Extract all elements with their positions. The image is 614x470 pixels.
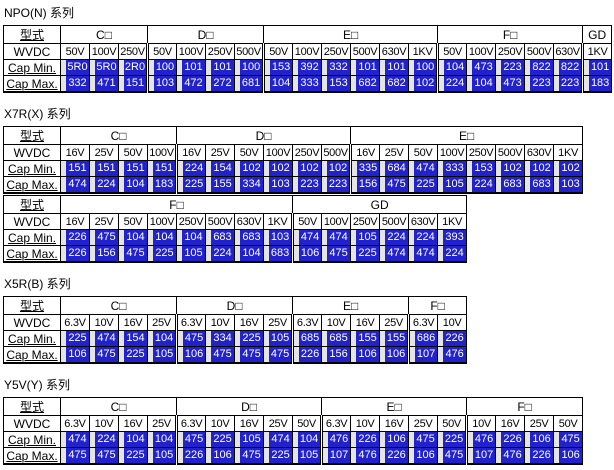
cap-value-link[interactable]: 102	[298, 161, 321, 176]
cap-value-link[interactable]: 226	[385, 448, 408, 463]
voltage-header: 250V	[322, 44, 351, 60]
cap-min-cell: 155	[351, 331, 380, 347]
cap-value-link[interactable]: 474	[66, 432, 89, 447]
cap-value-link[interactable]: 151	[95, 161, 118, 176]
group-header: D□	[177, 297, 293, 315]
cap-value-link[interactable]: 223	[559, 76, 581, 91]
cap-value-link[interactable]: 225	[211, 432, 234, 447]
cap-value-link[interactable]: 5R0	[95, 60, 118, 75]
cap-value-link[interactable]: 475	[240, 347, 263, 362]
cap-max-cell: 153	[322, 76, 351, 93]
cap-value-link[interactable]: 475	[327, 246, 350, 261]
cap-value-link[interactable]: 684	[385, 161, 408, 176]
row-label-cap-max[interactable]: Cap Max.	[4, 177, 61, 194]
cap-value-link[interactable]: 156	[95, 246, 118, 261]
cap-value-link[interactable]: 226	[66, 246, 89, 261]
cap-value-link[interactable]: 2R0	[124, 60, 146, 75]
cap-value-link[interactable]: 102	[530, 161, 553, 176]
voltage-header: 6.3V	[177, 416, 206, 432]
cap-value-link[interactable]: 393	[443, 230, 466, 245]
cap-value-link[interactable]: 106	[299, 246, 321, 261]
group-header: GD	[583, 26, 612, 44]
cap-value-link[interactable]: 183	[589, 76, 611, 91]
cap-max-cell: 183	[148, 177, 177, 194]
cap-value-link[interactable]: 154	[124, 331, 147, 346]
cap-max-cell: 104	[264, 76, 293, 93]
cap-max-cell: 474	[61, 177, 90, 194]
table-row: Cap Min.22647510410410468368310347447410…	[4, 230, 467, 246]
cap-value-link[interactable]: 685	[327, 331, 350, 346]
cap-value-link[interactable]: 475	[95, 347, 118, 362]
row-label-wvdc: WVDC	[4, 315, 61, 331]
cap-value-link[interactable]: 224	[385, 230, 408, 245]
cap-value-link[interactable]: 226	[356, 432, 379, 447]
cap-value-link[interactable]: 105	[269, 331, 291, 346]
cap-max-cell: 105	[177, 246, 206, 263]
cap-min-cell: 475	[177, 331, 206, 347]
cap-value-link[interactable]: 223	[327, 177, 349, 192]
row-label-cap-min[interactable]: Cap Min.	[4, 161, 61, 177]
cap-value-link[interactable]: 103	[559, 177, 582, 192]
cap-value-link[interactable]: 103	[269, 177, 292, 192]
cap-value-link[interactable]: 155	[385, 331, 407, 346]
cap-value-link[interactable]: 154	[211, 161, 234, 176]
voltage-header: 250V	[351, 214, 380, 230]
cap-value-link[interactable]: 476	[443, 347, 466, 362]
cap-value-link[interactable]: 475	[211, 347, 234, 362]
cap-min-cell: 103	[264, 230, 293, 246]
voltage-header: 1KV	[438, 214, 467, 230]
cap-value-link[interactable]: 102	[559, 161, 582, 176]
voltage-header: 25V	[409, 416, 438, 432]
cap-value-link[interactable]: 686	[415, 331, 437, 346]
cap-max-cell: 103	[148, 76, 177, 93]
cap-value-link[interactable]: 106	[559, 448, 582, 463]
table-row: Cap Min.5R05R02R010010110110015339233210…	[4, 60, 612, 76]
cap-value-link[interactable]: 475	[414, 432, 437, 447]
voltage-header: 100V	[148, 145, 177, 161]
cap-value-link[interactable]: 226	[530, 448, 553, 463]
cap-value-link[interactable]: 107	[328, 448, 350, 463]
cap-value-link[interactable]: 822	[559, 60, 581, 75]
cap-value-link[interactable]: 106	[183, 347, 205, 362]
cap-value-link[interactable]: 225	[124, 347, 147, 362]
cap-value-link[interactable]: 475	[269, 347, 291, 362]
cap-min-cell: 105	[351, 230, 380, 246]
cap-min-cell: 102	[554, 161, 583, 177]
voltage-header: 250V	[206, 44, 235, 60]
cap-value-link[interactable]: 335	[357, 161, 379, 176]
cap-value-link[interactable]: 476	[328, 432, 350, 447]
cap-value-link[interactable]: 100	[240, 60, 262, 75]
cap-value-link[interactable]: 106	[385, 347, 407, 362]
cap-min-cell: 224	[177, 161, 206, 177]
cap-min-cell: 153	[467, 161, 496, 177]
cap-value-link[interactable]: 156	[357, 177, 379, 192]
row-label-type[interactable]: 型式	[4, 196, 61, 214]
cap-value-link[interactable]: 183	[153, 177, 175, 192]
cap-value-link[interactable]: 223	[530, 76, 553, 91]
cap-value-link[interactable]: 475	[240, 448, 263, 463]
cap-min-cell: 104	[177, 230, 206, 246]
cap-max-cell: 107	[409, 347, 438, 364]
cap-value-link[interactable]: 474	[385, 246, 408, 261]
row-label-cap-min[interactable]: Cap Min.	[4, 230, 61, 246]
row-label-cap-min[interactable]: Cap Min.	[4, 432, 61, 448]
cap-value-link[interactable]: 105	[153, 347, 175, 362]
cap-max-cell: 475	[90, 347, 119, 364]
row-label-type[interactable]: 型式	[4, 297, 61, 315]
cap-value-link[interactable]: 101	[356, 60, 379, 75]
cap-value-link[interactable]: 474	[414, 161, 437, 176]
cap-value-link[interactable]: 105	[443, 177, 466, 192]
table-row: WVDC6.3V10V16V25V6.3V10V16V25V50V6.3V10V…	[4, 416, 583, 432]
cap-max-cell: 475	[235, 448, 264, 465]
row-label-cap-max[interactable]: Cap Max.	[4, 246, 61, 263]
cap-value-link[interactable]: 102	[501, 161, 524, 176]
row-label-wvdc: WVDC	[4, 416, 61, 432]
cap-min-cell: 226	[61, 230, 90, 246]
cap-value-link[interactable]: 223	[298, 177, 321, 192]
cap-value-link[interactable]: 155	[211, 177, 234, 192]
cap-value-link[interactable]: 153	[270, 60, 292, 75]
row-label-cap-min[interactable]: Cap Min.	[4, 60, 61, 76]
voltage-header: 10V	[438, 315, 467, 331]
cap-max-cell: 156	[90, 246, 119, 263]
cap-min-cell: 686	[409, 331, 438, 347]
cap-value-link[interactable]: 151	[153, 161, 175, 176]
cap-value-link[interactable]: 474	[299, 230, 321, 245]
voltage-header: 100V	[90, 44, 119, 60]
voltage-header: 500V	[235, 44, 264, 60]
cap-value-link[interactable]: 104	[270, 76, 292, 91]
group-header: C□	[61, 398, 177, 416]
cap-value-link[interactable]: 225	[124, 448, 147, 463]
cap-value-link[interactable]: 333	[443, 161, 466, 176]
voltage-header: 10V	[351, 416, 380, 432]
cap-value-link[interactable]: 683	[211, 230, 234, 245]
cap-value-link[interactable]: 224	[211, 246, 234, 261]
cap-value-link[interactable]: 223	[501, 60, 524, 75]
cap-value-link[interactable]: 105	[182, 246, 205, 261]
cap-min-cell: 101	[206, 60, 235, 76]
cap-value-link[interactable]: 105	[240, 432, 263, 447]
cap-value-link[interactable]: 474	[95, 331, 118, 346]
cap-value-link[interactable]: 104	[153, 432, 175, 447]
cap-max-cell: 106	[177, 347, 206, 364]
cap-value-link[interactable]: 107	[473, 448, 495, 463]
voltage-header: 100V	[467, 44, 496, 60]
row-label-cap-max[interactable]: Cap Max.	[4, 76, 61, 93]
cap-value-link[interactable]: 101	[385, 60, 408, 75]
cap-value-link[interactable]: 226	[299, 347, 321, 362]
cap-value-link[interactable]: 104	[124, 230, 147, 245]
cap-value-link[interactable]: 224	[443, 246, 466, 261]
cap-value-link[interactable]: 104	[182, 230, 205, 245]
cap-value-link[interactable]: 226	[183, 448, 205, 463]
voltage-header: 16V	[235, 315, 264, 331]
cap-value-link[interactable]: 151	[124, 76, 146, 91]
cap-value-link[interactable]: 156	[327, 347, 350, 362]
cap-value-link[interactable]: 822	[530, 60, 553, 75]
voltage-header: 250V	[293, 145, 322, 161]
table-row: Cap Min.47422410410447522510547410447622…	[4, 432, 583, 448]
cap-value-link[interactable]: 475	[559, 432, 582, 447]
voltage-header: 16V	[380, 416, 409, 432]
cap-max-cell: 226	[525, 448, 554, 465]
cap-min-cell: 104	[148, 331, 177, 347]
row-label-wvdc: WVDC	[4, 44, 61, 60]
cap-min-cell: 5R0	[61, 60, 90, 76]
cap-min-cell: 104	[119, 230, 148, 246]
table-row: Cap Min.22547415410447533422510568568515…	[4, 331, 467, 347]
cap-min-cell: 224	[380, 230, 409, 246]
cap-value-link[interactable]: 475	[66, 448, 89, 463]
cap-value-link[interactable]: 105	[356, 230, 379, 245]
cap-value-link[interactable]: 476	[356, 448, 379, 463]
voltage-header: 250V	[496, 44, 525, 60]
cap-value-link[interactable]: 100	[154, 60, 176, 75]
voltage-header: 6.3V	[293, 315, 322, 331]
cap-value-link[interactable]: 106	[414, 448, 437, 463]
voltage-header: 10V	[90, 315, 119, 331]
cap-max-cell: 106	[380, 347, 409, 364]
cap-value-link[interactable]: 225	[240, 331, 263, 346]
cap-value-link[interactable]: 474	[66, 177, 89, 192]
cap-max-cell: 682	[380, 76, 409, 93]
group-header: C□	[61, 127, 177, 145]
voltage-header: 16V	[61, 214, 90, 230]
cap-value-link[interactable]: 104	[124, 177, 147, 192]
cap-min-cell: 223	[496, 60, 525, 76]
voltage-header: 500V	[380, 214, 409, 230]
cap-value-link[interactable]: 106	[66, 347, 89, 362]
cap-min-cell: 475	[90, 230, 119, 246]
cap-value-link[interactable]: 475	[124, 246, 147, 261]
table-row: WVDC16V25V50V100V16V25V50V100V250V500V16…	[4, 145, 583, 161]
cap-value-link[interactable]: 153	[327, 76, 350, 91]
row-label-cap-min[interactable]: Cap Min.	[4, 331, 61, 347]
voltage-header: 16V	[119, 315, 148, 331]
cap-value-link[interactable]: 226	[501, 432, 524, 447]
cap-max-cell: 104	[235, 246, 264, 263]
cap-value-link[interactable]: 333	[298, 76, 321, 91]
cap-value-link[interactable]: 471	[95, 76, 118, 91]
cap-min-cell: 155	[380, 331, 409, 347]
cap-value-link[interactable]: 103	[269, 230, 291, 245]
cap-value-link[interactable]: 225	[66, 331, 89, 346]
cap-value-link[interactable]: 681	[240, 76, 262, 91]
cap-value-link[interactable]: 475	[183, 331, 205, 346]
cap-value-link[interactable]: 332	[327, 60, 350, 75]
cap-min-cell: 154	[119, 331, 148, 347]
cap-min-cell: 392	[293, 60, 322, 76]
cap-min-cell: 101	[583, 60, 612, 76]
cap-value-link[interactable]: 224	[183, 161, 205, 176]
cap-value-link[interactable]: 104	[444, 60, 466, 75]
cap-value-link[interactable]: 685	[299, 331, 321, 346]
group-header: F□	[438, 26, 583, 44]
cap-value-link[interactable]: 106	[385, 432, 408, 447]
cap-min-cell: 102	[496, 161, 525, 177]
cap-value-link[interactable]: 102	[414, 76, 436, 91]
cap-value-link[interactable]: 476	[501, 448, 524, 463]
cap-value-link[interactable]: 475	[95, 448, 118, 463]
cap-value-link[interactable]: 475	[443, 448, 465, 463]
cap-value-link[interactable]: 106	[211, 448, 234, 463]
cap-value-link[interactable]: 683	[530, 177, 553, 192]
cap-value-link[interactable]: 101	[211, 60, 234, 75]
cap-min-cell: 226	[438, 331, 467, 347]
cap-max-cell: 681	[235, 76, 264, 93]
cap-value-link[interactable]: 102	[269, 161, 292, 176]
cap-max-cell: 225	[264, 448, 293, 465]
cap-value-link[interactable]: 472	[182, 76, 205, 91]
cap-value-link[interactable]: 225	[269, 448, 292, 463]
cap-value-link[interactable]: 5R0	[66, 60, 89, 75]
cap-value-link[interactable]: 105	[153, 448, 175, 463]
cap-value-link[interactable]: 153	[472, 161, 495, 176]
cap-value-link[interactable]: 475	[95, 230, 118, 245]
cap-value-link[interactable]: 151	[124, 161, 147, 176]
cap-value-link[interactable]: 475	[385, 177, 408, 192]
cap-value-link[interactable]: 224	[95, 177, 118, 192]
cap-value-link[interactable]: 106	[356, 347, 379, 362]
cap-value-link[interactable]: 102	[240, 161, 263, 176]
cap-value-link[interactable]: 683	[269, 246, 291, 261]
cap-value-link[interactable]: 100	[414, 60, 436, 75]
cap-value-link[interactable]: 225	[443, 432, 465, 447]
voltage-header: 50V	[119, 214, 148, 230]
cap-max-cell: 223	[322, 177, 351, 194]
cap-max-cell: 476	[351, 448, 380, 465]
cap-max-cell: 223	[554, 76, 583, 93]
cap-max-cell: 475	[90, 448, 119, 465]
cap-max-cell: 105	[438, 177, 467, 194]
cap-max-cell: 225	[351, 246, 380, 263]
cap-value-link[interactable]: 151	[66, 161, 89, 176]
cap-value-link[interactable]: 225	[414, 177, 437, 192]
voltage-header: 6.3V	[61, 315, 90, 331]
cap-value-link[interactable]: 224	[472, 177, 495, 192]
cap-min-cell: 2R0	[119, 60, 148, 76]
cap-value-link[interactable]: 392	[298, 60, 321, 75]
cap-value-link[interactable]: 224	[414, 230, 437, 245]
cap-min-cell: 101	[380, 60, 409, 76]
cap-value-link[interactable]: 474	[414, 246, 437, 261]
cap-max-cell: 106	[409, 448, 438, 465]
cap-min-cell: 335	[351, 161, 380, 177]
cap-min-cell: 104	[438, 60, 467, 76]
group-header: F□	[409, 297, 467, 315]
voltage-header: 25V	[525, 416, 554, 432]
voltage-header: 100V	[177, 44, 206, 60]
cap-value-link[interactable]: 334	[211, 331, 234, 346]
cap-max-cell: 224	[438, 76, 467, 93]
row-label-cap-max[interactable]: Cap Max.	[4, 347, 61, 364]
cap-value-link[interactable]: 473	[501, 76, 524, 91]
cap-max-cell: 156	[322, 347, 351, 364]
cap-value-link[interactable]: 224	[95, 432, 118, 447]
cap-value-link[interactable]: 225	[356, 246, 379, 261]
cap-max-cell: 106	[351, 347, 380, 364]
cap-max-cell: 224	[206, 246, 235, 263]
cap-max-cell: 683	[525, 177, 554, 194]
cap-value-link[interactable]: 102	[327, 161, 349, 176]
cap-min-cell: 476	[322, 432, 351, 448]
cap-value-link[interactable]: 332	[66, 76, 89, 91]
section-title: X7R(X) 系列	[4, 105, 614, 122]
cap-max-cell: 151	[119, 76, 148, 93]
cap-value-link[interactable]: 101	[182, 60, 205, 75]
cap-value-link[interactable]: 107	[415, 347, 437, 362]
cap-max-cell: 226	[61, 246, 90, 263]
cap-value-link[interactable]: 155	[356, 331, 379, 346]
cap-value-link[interactable]: 106	[530, 432, 553, 447]
cap-value-link[interactable]: 475	[183, 432, 205, 447]
group-header: E□	[293, 297, 409, 315]
group-header: C□	[61, 26, 148, 44]
row-label-type[interactable]: 型式	[4, 26, 61, 44]
voltage-header: 6.3V	[177, 315, 206, 331]
cap-value-link[interactable]: 226	[443, 331, 466, 346]
section-title: Y5V(Y) 系列	[4, 376, 614, 393]
cap-value-link[interactable]: 225	[153, 246, 176, 261]
group-header: E□	[322, 398, 467, 416]
cap-value-link[interactable]: 105	[298, 448, 320, 463]
row-label-cap-max[interactable]: Cap Max.	[4, 448, 61, 465]
row-label-type[interactable]: 型式	[4, 398, 61, 416]
cap-value-link[interactable]: 104	[472, 76, 495, 91]
row-label-type[interactable]: 型式	[4, 127, 61, 145]
cap-max-cell: 475	[206, 347, 235, 364]
spec-table: 型式C□D□E□F□WVDC6.3V10V16V25V6.3V10V16V25V…	[3, 296, 467, 364]
cap-value-link[interactable]: 104	[153, 331, 175, 346]
cap-value-link[interactable]: 104	[124, 432, 147, 447]
cap-value-link[interactable]: 101	[589, 60, 611, 75]
spec-table: 型式F□GDWVDC16V25V50V100V250V500V630V1KV50…	[3, 195, 467, 263]
cap-value-link[interactable]: 226	[66, 230, 89, 245]
cap-value-link[interactable]: 473	[472, 60, 495, 75]
cap-max-cell: 683	[264, 246, 293, 263]
cap-min-cell: 822	[554, 60, 583, 76]
cap-value-link[interactable]: 104	[298, 432, 320, 447]
cap-value-link[interactable]: 474	[269, 432, 292, 447]
cap-value-link[interactable]: 104	[153, 230, 176, 245]
voltage-header: 630V	[235, 214, 264, 230]
series-section: NPO(N) 系列型式C□D□E□F□GDWVDC50V100V250V50V1…	[2, 4, 614, 93]
cap-value-link[interactable]: 224	[444, 76, 466, 91]
table-row: WVDC50V100V250V50V100V250V500V50V100V250…	[4, 44, 612, 60]
cap-value-link[interactable]: 103	[154, 76, 176, 91]
cap-value-link[interactable]: 104	[240, 246, 263, 261]
cap-value-link[interactable]: 225	[183, 177, 205, 192]
voltage-header: 10V	[206, 416, 235, 432]
cap-value-link[interactable]: 476	[473, 432, 495, 447]
cap-max-cell: 225	[119, 347, 148, 364]
voltage-header: 25V	[90, 145, 119, 161]
voltage-header: 50V	[61, 44, 90, 60]
cap-value-link[interactable]: 683	[240, 230, 263, 245]
cap-value-link[interactable]: 334	[240, 177, 263, 192]
cap-value-link[interactable]: 682	[356, 76, 379, 91]
cap-value-link[interactable]: 682	[385, 76, 408, 91]
cap-value-link[interactable]: 272	[211, 76, 234, 91]
cap-value-link[interactable]: 683	[501, 177, 524, 192]
cap-value-link[interactable]: 474	[327, 230, 350, 245]
cap-max-cell: 103	[264, 177, 293, 194]
cap-max-cell: 472	[177, 76, 206, 93]
